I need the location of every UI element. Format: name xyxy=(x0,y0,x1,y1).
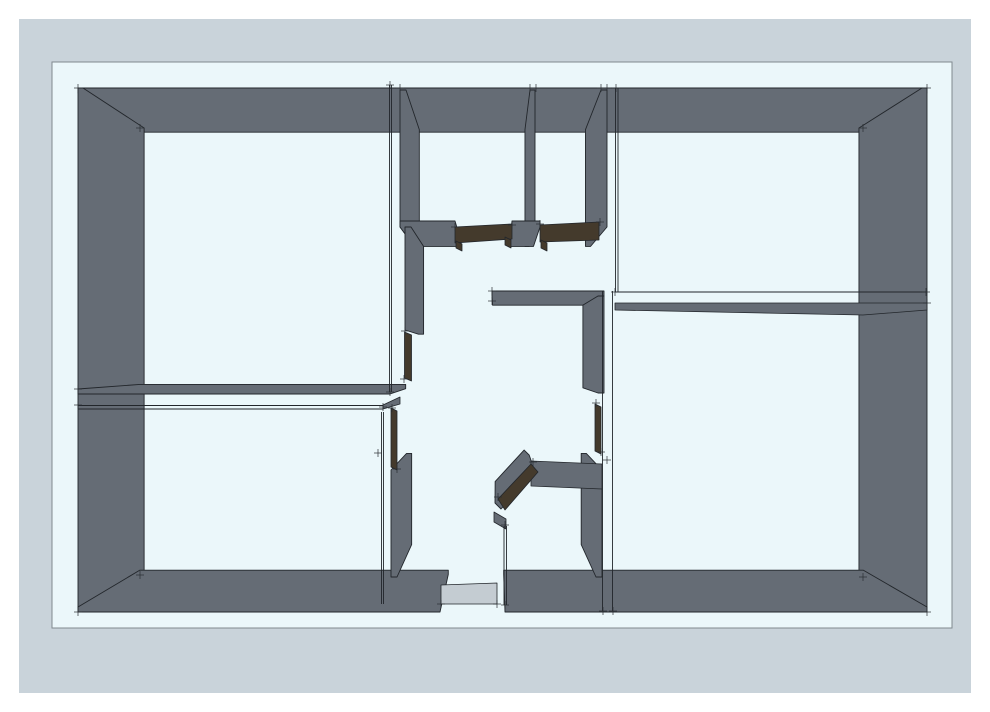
wall-outer-west xyxy=(78,88,144,612)
wall-hall-east-upper xyxy=(583,296,604,393)
wall-outer-east xyxy=(859,88,927,612)
wall-outer-north xyxy=(78,88,927,132)
door-hall-east-icon xyxy=(595,404,601,454)
drawing-page xyxy=(0,0,990,712)
wall-divider-left-upper xyxy=(78,384,406,394)
door-hall-west-lower-icon xyxy=(391,408,397,470)
floorplan-drawing xyxy=(0,0,990,712)
threshold-entry xyxy=(441,583,497,604)
door-header-closet-right-icon xyxy=(540,222,599,242)
wall-hall-west-upper xyxy=(405,227,424,334)
wall-mid-room-north xyxy=(531,461,602,489)
door-hall-west-upper-icon xyxy=(405,332,412,381)
wall-outer-south-right xyxy=(504,570,927,612)
paper-sheet xyxy=(52,62,952,628)
